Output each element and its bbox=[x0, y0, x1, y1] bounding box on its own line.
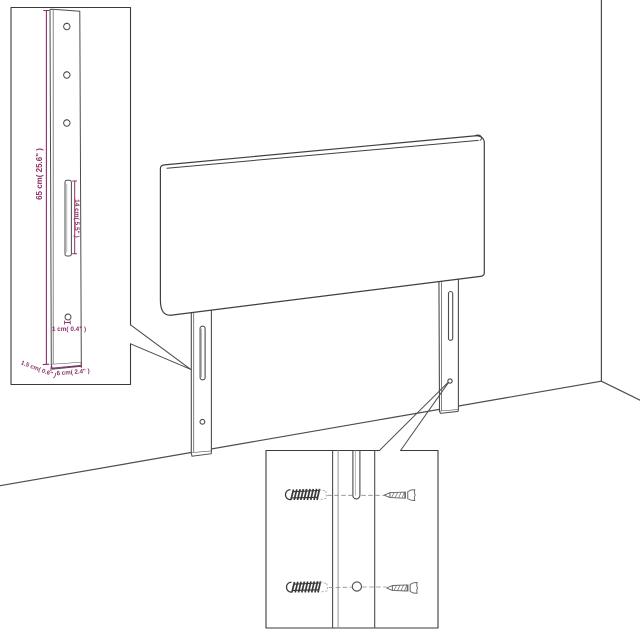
svg-text:65 cm( 25.6" ): 65 cm( 25.6" ) bbox=[35, 148, 44, 200]
svg-text:14 cm( 5.5" ): 14 cm( 5.5" ) bbox=[73, 199, 80, 238]
svg-text:1 cm( 0.4" ): 1 cm( 0.4" ) bbox=[52, 326, 86, 333]
